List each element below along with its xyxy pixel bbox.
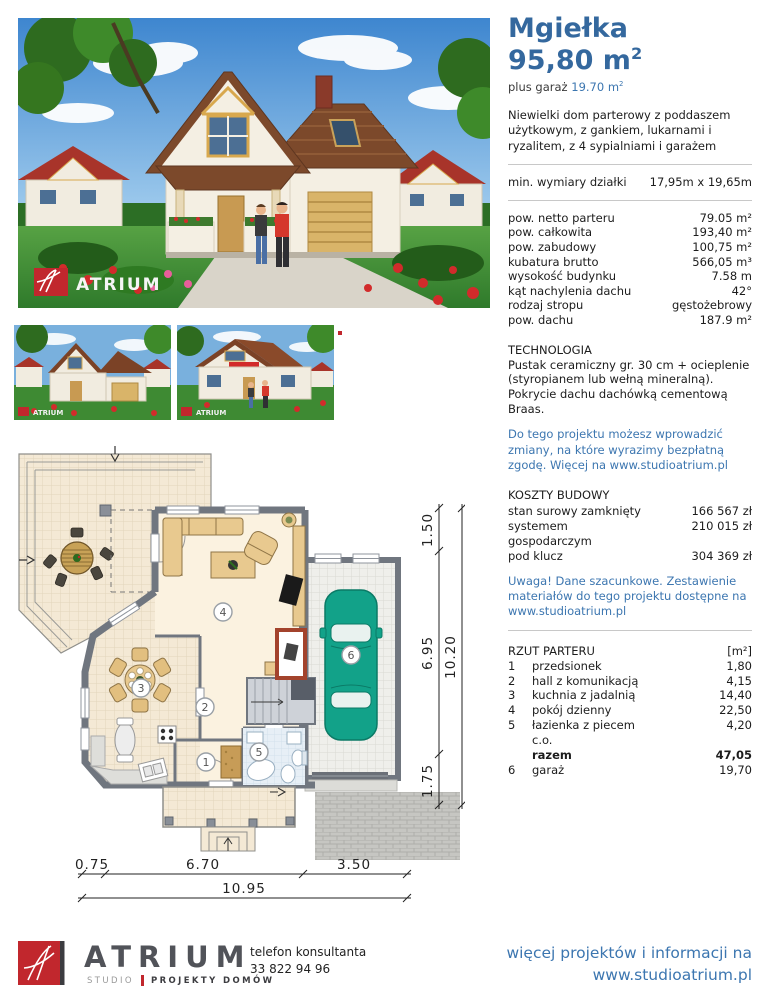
floor-list-row: 3 kuchnia z jadalnią 14,40 (508, 688, 752, 703)
room-area: 22,50 (719, 703, 752, 718)
spec-value: 100,75 m² (692, 240, 752, 255)
svg-text:3.50: 3.50 (337, 857, 371, 873)
garage (302, 554, 398, 786)
floor-list-row: 2 hall z komunikacją 4,15 (508, 674, 752, 689)
spec-value: 187.9 m² (700, 313, 752, 328)
svg-text:10.95: 10.95 (222, 881, 266, 897)
spec-label: kąt nachylenia dachu (508, 284, 631, 299)
svg-text:1.75: 1.75 (420, 764, 436, 798)
spec-row: wysokość budynku 7.58 m (508, 269, 752, 284)
watermark-text: ATRIUM (33, 409, 63, 417)
car (320, 590, 382, 740)
area-value: 95,80 m (508, 45, 631, 76)
svg-text:10.20: 10.20 (443, 635, 459, 679)
cost-row: stan surowy zamknięty 166 567 zł (508, 504, 752, 519)
watermark-text: ATRIUM (196, 409, 226, 417)
room-name: pokój dzienny (532, 703, 719, 718)
room-number: 6 (508, 763, 532, 778)
spec-row: pow. zabudowy 100,75 m² (508, 240, 752, 255)
project-sheet-page: ATRIUM ATRIUM (0, 0, 768, 994)
watermark-text: ATRIUM (76, 275, 162, 295)
svg-text:6: 6 (348, 649, 355, 662)
floor-list: 1 przedsionek 1,80 2 hall z komunikacją … (508, 659, 752, 779)
room-name: c.o. (532, 733, 752, 748)
spec-value: gęstożebrowy (672, 298, 752, 313)
floor-plan-drawing: 1 2 3 4 5 6 1.50 6.95 1.75 10.20 0.75 6.… (15, 440, 465, 918)
atrium-logo-icon (18, 941, 66, 985)
room-name: kuchnia z jadalnią (532, 688, 719, 703)
floor-list-header: RZUT PARTERU [m²] (508, 644, 752, 659)
room-area: 47,05 (716, 748, 752, 763)
room-area: 14,40 (719, 688, 752, 703)
costs-heading: KOSZTY BUDOWY (508, 488, 752, 503)
divider (508, 164, 752, 165)
technology-heading: TECHNOLOGIA (508, 343, 752, 358)
plot-size-value: 17,95m x 19,65m (650, 175, 752, 190)
room-name: przedsionek (532, 659, 726, 674)
cost-label: systemem (508, 519, 568, 534)
floor-list-heading: RZUT PARTERU (508, 644, 595, 659)
costs-note: Uwaga! Dane szacunkowe. Zestawienie mate… (508, 574, 752, 620)
garage-area-sup: 2 (619, 80, 623, 88)
divider (508, 200, 752, 201)
spec-label: rodzaj stropu (508, 298, 583, 313)
spec-list: pow. netto parteru 79.05 m² pow. całkowi… (508, 211, 752, 328)
floor-list-row: razem 47,05 (508, 748, 752, 763)
svg-text:4: 4 (220, 606, 227, 619)
project-photo-thumbnail-1[interactable]: ATRIUM (14, 325, 171, 420)
svg-text:1: 1 (203, 756, 210, 769)
cost-label: stan surowy zamknięty (508, 504, 641, 519)
plot-size-row: min. wymiary działki 17,95m x 19,65m (508, 175, 752, 190)
cost-row: pod klucz 304 369 zł (508, 549, 752, 564)
atrium-wordmark: ATRIUM (84, 940, 252, 974)
spec-row: pow. netto parteru 79.05 m² (508, 211, 752, 226)
room-area: 4,15 (726, 674, 752, 689)
svg-text:6.70: 6.70 (186, 857, 220, 873)
room-name: łazienka z piecem (532, 718, 726, 733)
consultant-phone: telefon konsultanta 33 822 94 96 (250, 944, 366, 978)
project-title: Mgiełka (508, 14, 752, 44)
svg-text:3: 3 (138, 682, 145, 695)
more-projects-note: więcej projektów i informacji na www.stu… (506, 942, 752, 986)
spec-value: 566,05 m³ (692, 255, 752, 270)
svg-text:0.75: 0.75 (75, 857, 109, 873)
cost-value: 166 567 zł (691, 504, 752, 519)
room-name: razem (532, 748, 716, 763)
garage-prefix: plus garaż (508, 80, 571, 94)
room-name: garaż (532, 763, 719, 778)
spec-label: kubatura brutto (508, 255, 599, 270)
tagline-studio: STUDIO (87, 976, 134, 986)
room-number: 2 (508, 674, 532, 689)
garage-area-line: plus garaż 19.70 m2 (508, 80, 752, 95)
garage-apron (305, 780, 397, 791)
driveway (315, 792, 460, 860)
spec-value: 193,40 m² (692, 225, 752, 240)
entry-wardrobe (221, 746, 241, 778)
cost-value: 304 369 zł (691, 549, 752, 564)
project-photo-thumbnail-2[interactable]: ATRIUM (177, 325, 334, 420)
floor-list-row: 6 garaż 19,70 (508, 763, 752, 778)
floor-list-row: 4 pokój dzienny 22,50 (508, 703, 752, 718)
cost-label: gospodarczym (508, 534, 592, 549)
room-number (508, 733, 532, 748)
floor-list-row: c.o. (508, 733, 752, 748)
floor-list-row: 1 przedsionek 1,80 (508, 659, 752, 674)
divider (508, 630, 752, 631)
fireplace (277, 630, 305, 678)
tagline-divider (141, 975, 144, 986)
area-sup: 2 (631, 44, 642, 63)
room-number (508, 748, 532, 763)
more-projects-line: więcej projektów i informacji na (506, 942, 752, 964)
room-area: 19,70 (719, 763, 752, 778)
spec-label: pow. zabudowy (508, 240, 596, 255)
cost-row: gospodarczym (508, 534, 752, 549)
svg-text:2: 2 (202, 701, 209, 714)
spec-label: pow. dachu (508, 313, 573, 328)
spec-label: pow. netto parteru (508, 211, 615, 226)
spec-value: 42° (732, 284, 752, 299)
phone-label: telefon konsultanta (250, 944, 366, 961)
spec-row: kąt nachylenia dachu 42° (508, 284, 752, 299)
spec-label: pow. całkowita (508, 225, 592, 240)
cost-value: 210 015 zł (691, 519, 752, 534)
main-house-photo: ATRIUM (18, 18, 490, 308)
floor-list-unit: [m²] (727, 644, 752, 659)
spec-row: rodzaj stropu gęstożebrowy (508, 298, 752, 313)
spec-row: pow. dachu 187.9 m² (508, 313, 752, 328)
porch (163, 787, 295, 851)
room-number: 5 (508, 718, 532, 733)
svg-text:6.95: 6.95 (420, 636, 436, 670)
svg-text:5: 5 (256, 746, 263, 759)
room-number: 4 (508, 703, 532, 718)
room-area: 1,80 (726, 659, 752, 674)
room-number: 1 (508, 659, 532, 674)
project-area: 95,80 m2 (508, 44, 752, 77)
room-name: hall z komunikacją (532, 674, 726, 689)
room-number: 3 (508, 688, 532, 703)
atrium-tagline: STUDIO PROJEKTY DOMÓW (87, 975, 274, 986)
cost-row: systemem 210 015 zł (508, 519, 752, 534)
room-area: 4,20 (726, 718, 752, 733)
cost-label: pod klucz (508, 549, 563, 564)
technology-note: Do tego projektu możesz wprowadzić zmian… (508, 427, 752, 473)
spec-value: 7.58 m (712, 269, 752, 284)
floor-list-row: 5 łazienka z piecem 4,20 (508, 718, 752, 733)
costs-rows: stan surowy zamknięty 166 567 zł systeme… (508, 504, 752, 564)
phone-number: 33 822 94 96 (250, 961, 366, 978)
svg-text:1.50: 1.50 (420, 513, 436, 547)
project-info-panel: Mgiełka 95,80 m2 plus garaż 19.70 m2 Nie… (508, 14, 752, 778)
plot-size-label: min. wymiary działki (508, 175, 627, 190)
stairs (247, 678, 315, 724)
spec-row: pow. całkowita 193,40 m² (508, 225, 752, 240)
technology-text: Pustak ceramiczny gr. 30 cm + ocieplenie… (508, 358, 752, 418)
website-link[interactable]: www.studioatrium.pl (506, 964, 752, 986)
spec-label: wysokość budynku (508, 269, 616, 284)
garage-area-value: 19.70 m (571, 80, 619, 94)
spec-value: 79.05 m² (700, 211, 752, 226)
red-marker-dot (338, 331, 342, 335)
project-description: Niewielki dom parterowy z poddaszem użyt… (508, 108, 752, 154)
spec-row: kubatura brutto 566,05 m³ (508, 255, 752, 270)
